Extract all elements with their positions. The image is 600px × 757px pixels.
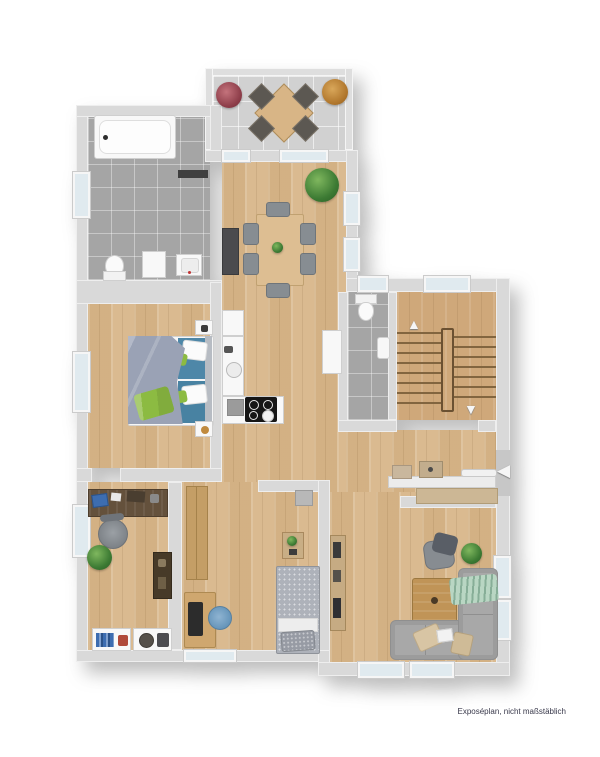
sofa-mint-throw: [449, 574, 500, 606]
dining-chair-left-1: [243, 223, 259, 245]
kids-desk-pad: [188, 602, 203, 636]
kitchen-cooktop: [245, 397, 277, 422]
toilet-tank: [103, 271, 126, 281]
kids-bedside-shelf: [282, 532, 304, 559]
wall-bedroom-bottom-b: [120, 468, 222, 482]
kids-wardrobe: [186, 486, 208, 580]
office-desk-item-2: [150, 494, 159, 503]
kitchen-tall-cabinet: [222, 310, 244, 336]
floor-plan: ◀: [0, 0, 600, 757]
burner-1: [249, 400, 259, 410]
office-laptop: [91, 493, 109, 508]
bedside-plant: [287, 536, 297, 546]
bathtub-drain: [103, 135, 108, 140]
window-living-bottom-1: [358, 662, 404, 678]
burner-3: [249, 411, 258, 420]
window-kidsroom-bottom: [184, 650, 236, 662]
stairs-up-arrow-icon: ▲: [407, 317, 421, 331]
kitchen-faucet: [224, 346, 233, 353]
shelf-box-dark: [157, 633, 169, 647]
sofa-magazine: [436, 628, 454, 643]
bedside-item: [289, 549, 297, 555]
bathroom-shelf: [178, 170, 208, 178]
bathroom-cabinet: [142, 251, 166, 278]
wc-toilet-bowl: [358, 302, 374, 321]
terrace-door-window-2: [222, 150, 250, 162]
nightstand-top: [195, 320, 213, 335]
stairs-center-rail: [441, 328, 454, 412]
stairs-down-arrow-icon: ▼: [464, 402, 478, 416]
window-bedroom-left: [73, 352, 90, 412]
hall-bench: [416, 488, 498, 504]
terrace-door-window: [280, 150, 328, 162]
office-paper: [111, 492, 122, 501]
bathtub: [94, 115, 176, 159]
terrace-railing-right: [345, 68, 353, 150]
dining-chair-bottom: [266, 283, 290, 298]
bathtub-basin: [99, 120, 171, 154]
terrace-railing-top: [205, 68, 353, 76]
dining-chair-right-1: [300, 223, 316, 245]
dining-plant-large: [305, 168, 339, 202]
shelf-basket: [139, 633, 154, 648]
nightstand-bottom: [195, 421, 213, 437]
floorplan-page: { "page": { "background": "#ffffff", "fo…: [0, 0, 600, 757]
nightstand-cup: [201, 426, 209, 434]
office-plant: [87, 545, 112, 570]
shelf-books-blue: [96, 633, 114, 647]
dining-chair-right-2: [300, 253, 316, 275]
burner-2: [263, 400, 273, 410]
books-1: [333, 542, 341, 558]
shelf-item-red: [118, 635, 128, 646]
wc-sink: [377, 337, 390, 359]
window-bathroom-left: [73, 172, 90, 218]
wall-bedroom-bottom-a: [76, 468, 92, 482]
window-dining-right-1: [344, 192, 360, 225]
stairs-left-flight: [397, 332, 442, 412]
window-stairs-top-2: [424, 276, 470, 292]
sideboard-item-2: [158, 577, 166, 589]
table-knot: [431, 597, 438, 604]
books-3: [333, 598, 341, 618]
bathroom-sink: [176, 254, 202, 276]
stairs-right-flight: [454, 336, 496, 404]
books-2: [333, 570, 341, 582]
living-plant: [461, 543, 482, 564]
hall-box-2: [419, 461, 443, 478]
office-shelf-2: [133, 628, 172, 651]
nightstand-lamp: [201, 325, 208, 332]
single-bed-pillow: [280, 630, 315, 652]
kitchen-gray-module: [227, 399, 244, 416]
sideboard-item-1: [158, 559, 166, 567]
dining-chair-top: [266, 202, 290, 217]
kids-desk-chair: [208, 606, 232, 630]
sink-soap-dot: [188, 271, 191, 274]
terrace-plant-red: [216, 82, 242, 108]
hall-box-1: [392, 465, 412, 479]
entry-door-arrow-icon: ◀: [497, 464, 510, 478]
living-bookshelf: [330, 535, 346, 631]
wall-wc-bottom: [338, 420, 397, 432]
window-dining-right-2: [344, 238, 360, 271]
window-stairs-top-1: [358, 276, 388, 292]
chimney-block: [295, 490, 313, 506]
window-living-bottom-2: [410, 662, 454, 678]
office-sideboard: [153, 552, 172, 599]
terrace-plant-orange: [322, 79, 348, 105]
kitchen-sink-basin: [226, 362, 242, 378]
hall-box-dot: [428, 467, 433, 472]
wall-bedroom-top: [76, 280, 222, 304]
wall-stair-stub: [478, 420, 496, 432]
wc-open-door-panel: [322, 330, 342, 374]
dining-chair-left-2: [243, 253, 259, 275]
dining-sideboard: [222, 228, 239, 275]
office-shelf-1: [92, 628, 131, 651]
footer-note: Exposéplan, nicht maßstäblich: [458, 707, 567, 716]
kettle: [262, 410, 274, 422]
office-desk-item: [127, 490, 146, 502]
hall-coat-rail: [461, 469, 497, 477]
dining-table-plant: [272, 242, 283, 253]
